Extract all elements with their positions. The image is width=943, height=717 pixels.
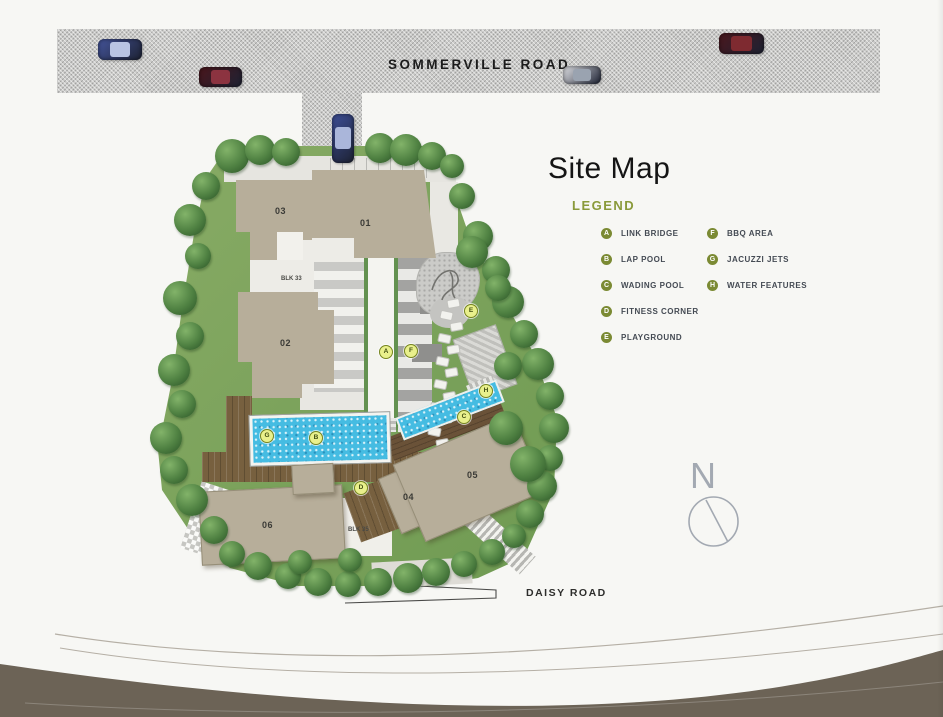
car-white-east	[563, 66, 601, 84]
tree-icon	[440, 154, 464, 178]
tree-icon	[539, 413, 569, 443]
legend-item-E: EPLAYGROUND	[601, 332, 707, 343]
car-cabin	[211, 70, 231, 84]
sommerville-road-label: SOMMERVILLE ROAD	[388, 57, 570, 72]
footer-curve-line-1	[55, 606, 943, 656]
compass-needle-icon	[706, 500, 728, 542]
map-marker-E: E	[464, 304, 478, 318]
legend-column: ALINK BRIDGEBLAP POOLCWADING POOLDFITNES…	[572, 228, 707, 358]
tree-icon	[192, 172, 220, 200]
tree-icon	[163, 281, 197, 315]
legend-item-H: HWATER FEATURES	[707, 280, 807, 291]
tree-icon	[364, 568, 392, 596]
legend-column: FBBQ AREAGJACUZZI JETSHWATER FEATURES	[707, 228, 807, 358]
legend-badge-icon: E	[601, 332, 612, 343]
building-06-wing	[291, 463, 335, 495]
tree-icon	[479, 539, 505, 565]
car-blue-driveway	[332, 114, 354, 163]
car-cabin	[110, 42, 130, 57]
tree-icon	[456, 236, 488, 268]
legend-item-label: LAP POOL	[621, 255, 666, 264]
legend-item-label: FITNESS CORNER	[621, 307, 699, 316]
car-darkred-west	[199, 67, 242, 87]
page-title: Site Map	[548, 152, 670, 186]
car-cabin	[335, 127, 350, 150]
map-marker-D: D	[354, 481, 368, 495]
legend-item-A: ALINK BRIDGE	[601, 228, 707, 239]
legend-item-label: JACUZZI JETS	[727, 255, 789, 264]
car-darkred-east	[719, 33, 764, 54]
footer-curve-line-3	[25, 682, 943, 712]
walkway-hedge-left	[364, 230, 368, 426]
tree-icon	[338, 548, 362, 572]
tree-icon	[158, 354, 190, 386]
tree-icon	[219, 541, 245, 567]
footer-curve-line-2	[60, 634, 943, 673]
legend-item-label: WADING POOL	[621, 281, 684, 290]
tree-icon	[536, 382, 564, 410]
legend-item-label: WATER FEATURES	[727, 281, 807, 290]
scanned-site-map-page: SOMMERVILLE ROAD 010203040506BLK 33BLK 3…	[0, 0, 943, 717]
compass-circle-icon	[689, 497, 738, 546]
tree-icon	[304, 568, 332, 596]
tree-icon	[489, 411, 523, 445]
map-marker-B: B	[309, 431, 323, 445]
legend-badge-icon: C	[601, 280, 612, 291]
legend-badge-icon: F	[707, 228, 718, 239]
legend-item-G: GJACUZZI JETS	[707, 254, 807, 265]
tree-icon	[185, 243, 211, 269]
map-marker-F: F	[404, 344, 418, 358]
tree-icon	[510, 446, 546, 482]
legend-item-label: LINK BRIDGE	[621, 229, 679, 238]
tree-icon	[176, 322, 204, 350]
tree-icon	[168, 390, 196, 418]
tree-icon	[160, 456, 188, 484]
tree-icon	[393, 563, 423, 593]
tree-icon	[176, 484, 208, 516]
tree-icon	[150, 422, 182, 454]
legend-items: ALINK BRIDGEBLAP POOLCWADING POOLDFITNES…	[572, 228, 807, 358]
tree-icon	[215, 139, 249, 173]
legend: LEGEND ALINK BRIDGEBLAP POOLCWADING POOL…	[572, 198, 807, 358]
map-marker-G: G	[260, 429, 274, 443]
tree-icon	[335, 571, 361, 597]
tree-icon	[272, 138, 300, 166]
tree-icon	[245, 135, 275, 165]
map-marker-C: C	[457, 410, 471, 424]
footer-swoosh-band	[0, 650, 943, 717]
tree-icon	[494, 352, 522, 380]
car-cabin	[573, 69, 590, 82]
legend-item-B: BLAP POOL	[601, 254, 707, 265]
tree-icon	[510, 320, 538, 348]
tree-icon	[522, 348, 554, 380]
car-cabin	[731, 36, 752, 51]
legend-badge-icon: G	[707, 254, 718, 265]
car-blue-west	[98, 39, 142, 60]
tree-icon	[174, 204, 206, 236]
legend-heading: LEGEND	[572, 198, 807, 213]
legend-item-C: CWADING POOL	[601, 280, 707, 291]
tree-icon	[449, 183, 475, 209]
legend-item-F: FBBQ AREA	[707, 228, 807, 239]
building-03-notch	[277, 232, 303, 260]
central-walkway	[368, 230, 394, 426]
legend-badge-icon: D	[601, 306, 612, 317]
map-marker-A: A	[379, 345, 393, 359]
legend-badge-icon: H	[707, 280, 718, 291]
tree-icon	[244, 552, 272, 580]
tree-icon	[422, 558, 450, 586]
map-marker-H: H	[479, 384, 493, 398]
legend-item-label: BBQ AREA	[727, 229, 773, 238]
driveway-corner-right	[362, 93, 380, 111]
tree-icon	[288, 550, 312, 574]
tree-icon	[390, 134, 422, 166]
legend-item-label: PLAYGROUND	[621, 333, 682, 342]
legend-badge-icon: A	[601, 228, 612, 239]
legend-badge-icon: B	[601, 254, 612, 265]
legend-item-D: DFITNESS CORNER	[601, 306, 707, 317]
daisy-road-label: DAISY ROAD	[526, 587, 607, 599]
tree-icon	[200, 516, 228, 544]
tree-icon	[485, 275, 511, 301]
pool-deck-west	[226, 396, 252, 458]
tree-icon	[516, 500, 544, 528]
north-indicator-label: N	[690, 455, 716, 497]
driveway-corner-left	[284, 93, 302, 111]
tree-icon	[502, 524, 526, 548]
tree-icon	[451, 551, 477, 577]
